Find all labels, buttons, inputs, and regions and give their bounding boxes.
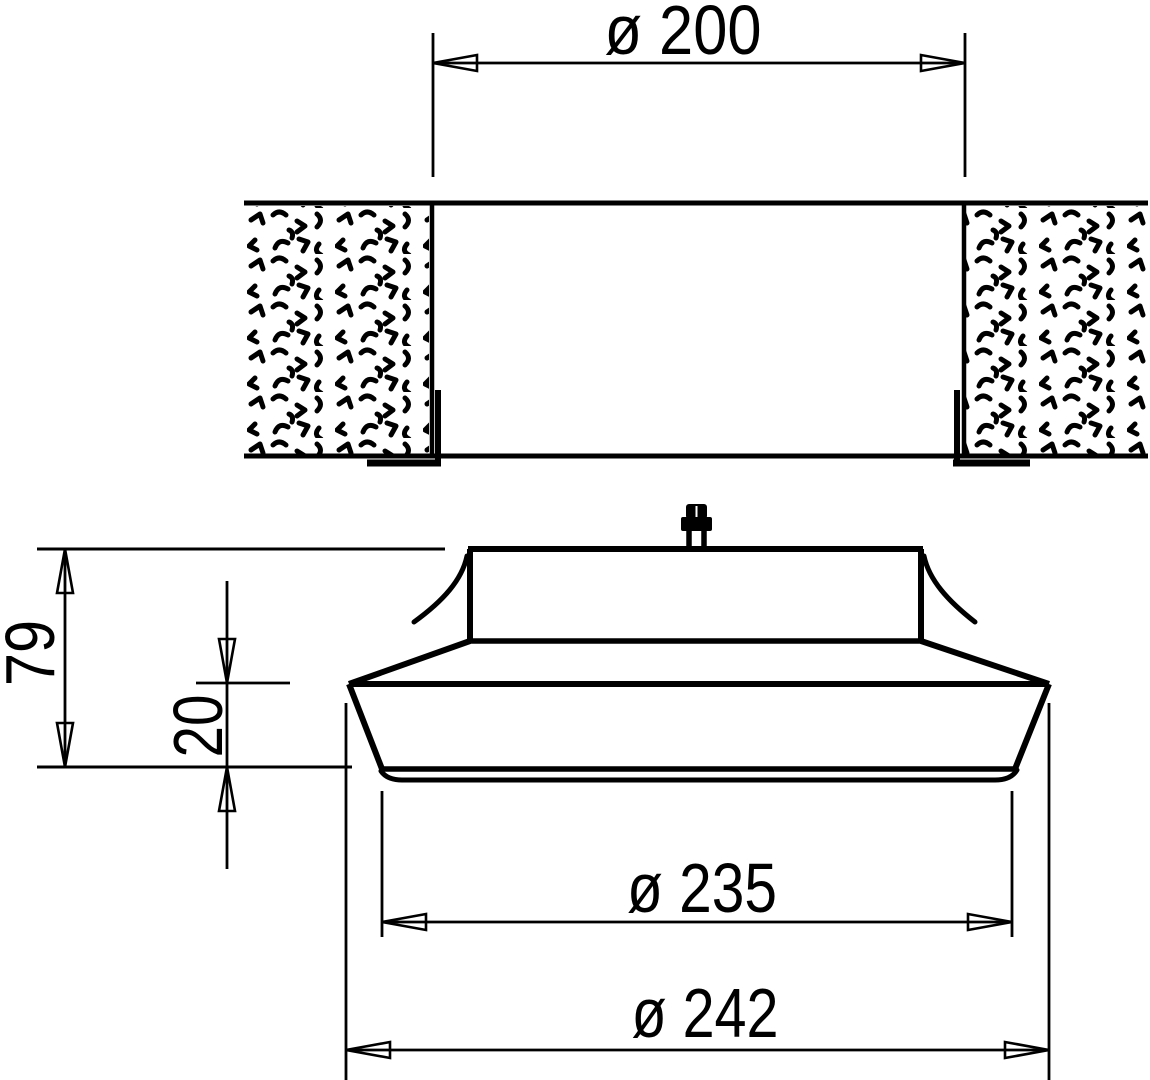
dim79-label: 79 bbox=[0, 620, 69, 686]
dim235-label: ø 235 bbox=[627, 849, 777, 927]
bolt-nut bbox=[681, 517, 712, 531]
fixing-bolt bbox=[681, 504, 712, 549]
dim-face-height: 20 bbox=[159, 581, 290, 869]
spring-clip-left bbox=[414, 556, 467, 622]
dim20-label: 20 bbox=[159, 695, 237, 758]
ceiling-hatch-left bbox=[247, 206, 429, 454]
cone-left-edge bbox=[349, 641, 470, 684]
dim200-label: ø 200 bbox=[605, 0, 762, 69]
dim-face-diameter: ø 235 bbox=[382, 791, 1012, 937]
installation-drawing: ø 200 79 20 ø 235 ø 242 bbox=[0, 0, 1150, 1080]
cone-right-edge bbox=[921, 641, 1049, 684]
dim242-label: ø 242 bbox=[632, 974, 779, 1052]
flange-right-edge bbox=[1015, 684, 1049, 769]
ceiling-hatch-right bbox=[965, 206, 1147, 454]
dim-duct-diameter: ø 200 bbox=[433, 0, 965, 177]
ceiling-section bbox=[244, 203, 1148, 463]
spring-clip-right bbox=[924, 556, 975, 622]
flange-left-edge bbox=[349, 684, 382, 769]
valve-profile bbox=[349, 504, 1049, 780]
technical-drawing-page: ø 200 79 20 ø 235 ø 242 bbox=[0, 0, 1150, 1080]
